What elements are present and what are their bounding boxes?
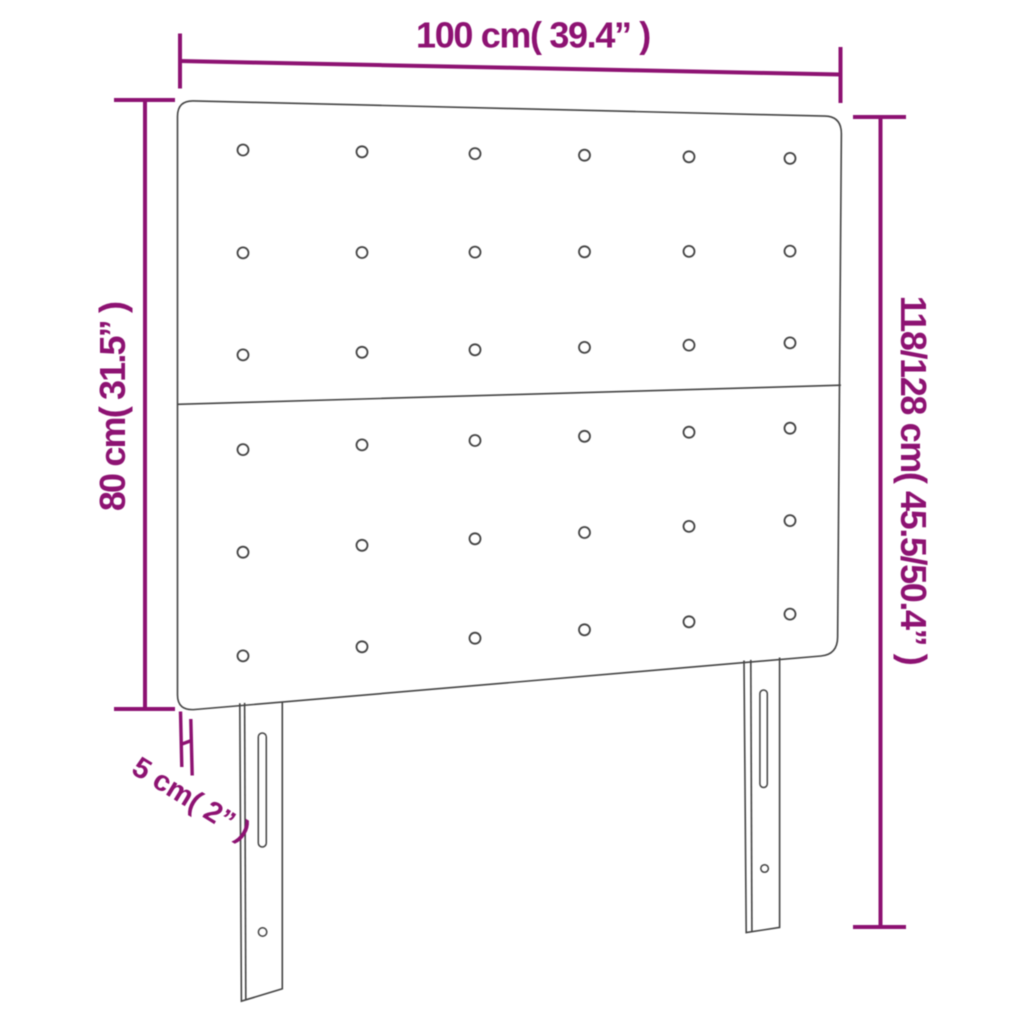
svg-text:80 cm( 31.5” ): 80 cm( 31.5” ) (92, 302, 133, 511)
svg-text:100 cm( 39.4” ): 100 cm( 39.4” ) (416, 15, 650, 56)
svg-text:118/128 cm( 45.5/50.4” ): 118/128 cm( 45.5/50.4” ) (893, 296, 934, 665)
